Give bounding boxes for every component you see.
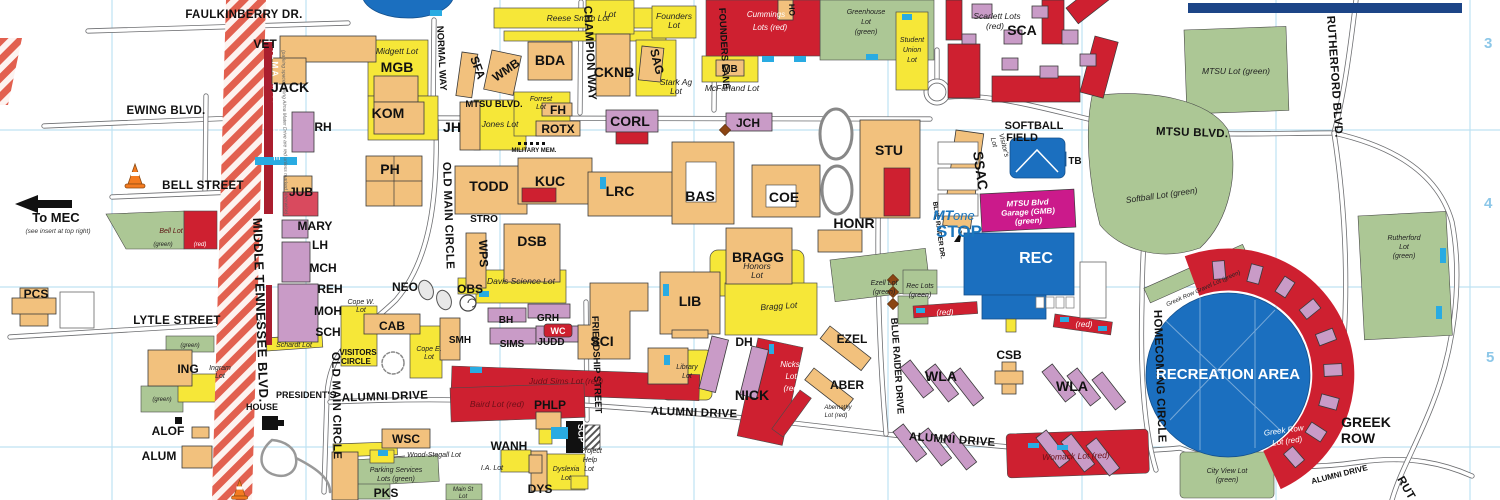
softball-field-shape[interactable]	[1010, 138, 1065, 178]
lot-label-rutherford-3: (green)	[1393, 253, 1416, 260]
lot-label-mtsu: MTSU Lot (green)	[1202, 66, 1270, 76]
label-wps: WPS	[476, 240, 491, 268]
street-greek-row-1: GREEK	[1341, 414, 1391, 430]
campus-map: 3 4 5	[0, 0, 1500, 500]
lot-label-parking-1: Parking Services	[370, 467, 423, 474]
lot-label-dyslexia-1: Dyslexia	[553, 466, 580, 473]
presidents-house-icon	[262, 416, 284, 430]
lot-label-cummings-1: Cummings	[747, 10, 785, 19]
building-ia[interactable]	[529, 455, 542, 473]
label-stu: STU	[875, 142, 903, 158]
building-alof[interactable]	[192, 427, 209, 438]
lot-label-bell-red: (red)	[194, 242, 207, 248]
lot-phlp[interactable]	[539, 429, 552, 444]
lot-label-schardt: Schardt Lot	[276, 342, 313, 349]
visitors-circle-2: CIRCLE	[341, 357, 371, 366]
label-fh: FH	[550, 103, 566, 117]
lot-label-scarlett-1: Scarlett Lots	[973, 11, 1021, 21]
lot-label-mcfarland: McFarland Lot	[705, 83, 760, 93]
label-obs: OBS	[457, 282, 483, 296]
grid-number-4: 4	[1484, 195, 1493, 212]
lot-label-wood: Wood-Stegall Lot	[407, 452, 462, 459]
label-vet: VET	[253, 37, 277, 51]
lot-label-reclots-2: (green)	[909, 292, 932, 299]
label-lib: LIB	[679, 293, 702, 309]
label-sca: SCA	[1007, 22, 1037, 38]
label-ezel: EZEL	[837, 332, 868, 346]
label-scp: SCP	[576, 424, 587, 443]
lot-label-project-3: Lot	[584, 466, 595, 473]
lot-label-parking-2: Lots (green)	[377, 476, 415, 483]
lot-label-student-3: Lot	[907, 57, 918, 64]
lot-label-stark-2: Lot	[670, 86, 682, 96]
construction-zone	[0, 0, 266, 500]
lot-project-help[interactable]	[571, 476, 588, 489]
ing-marker	[175, 417, 182, 424]
lot-label-main-2: Lot	[459, 494, 468, 500]
street-rutherford: RUTHERFORD BLVD.	[1324, 15, 1344, 138]
lot-rec-1[interactable]	[903, 270, 937, 294]
street-alumni-2: ALUMNI DRIVE	[651, 405, 738, 420]
street-mtsu-e: MTSU BLVD.	[1156, 126, 1229, 141]
building-corl-red[interactable]	[616, 132, 648, 144]
label-phlp: PHLP	[534, 398, 566, 412]
wood-stegall-leader	[394, 456, 405, 457]
lot-label-city-1: City View Lot	[1207, 468, 1249, 475]
recreation-area-label: RECREATION AREA	[1156, 366, 1300, 383]
lot-label-library-2: Lot	[682, 373, 693, 380]
street-greek-row-2: ROW	[1341, 430, 1376, 446]
street-mtsu-w: MTSU BLVD.	[465, 99, 522, 110]
lot-label-rutherford-2: Lot	[1399, 244, 1410, 251]
lot-label-main-1: Main St	[453, 487, 474, 493]
lot-label-greenhouse-2: Lot	[861, 19, 872, 26]
label-wanh: WANH	[491, 439, 528, 453]
label-mgb: MGB	[381, 59, 414, 75]
label-sims: SIMS	[500, 339, 525, 350]
lot-label-cummings-2: Lots (red)	[753, 23, 788, 32]
street-ewing: EWING BLVD.	[126, 105, 205, 117]
label-sch: SCH	[315, 325, 340, 339]
grid-number-5: 5	[1486, 349, 1494, 366]
label-coe: COE	[769, 189, 799, 205]
lot-label-greenhouse-1: Greenhouse	[847, 9, 886, 16]
lot-label-dyslexia-2: Lot	[561, 475, 572, 482]
mt-one-stop-stop: STOP	[936, 222, 982, 241]
lot-label-partial: Lot	[604, 9, 616, 19]
lot-label-nicks-3: (red)	[784, 384, 801, 393]
to-mec-note: (see insert at top right)	[25, 228, 90, 235]
svg-text:Lot: Lot	[989, 137, 998, 149]
label-moh: MOH	[314, 304, 342, 318]
lot-label-project-1: Project	[580, 448, 603, 455]
label-cknb: CKNB	[594, 64, 634, 80]
street-normal-way: NORMAL WAY	[434, 26, 448, 92]
lot-ia[interactable]	[501, 450, 531, 472]
lot-rutherford[interactable]	[1358, 211, 1452, 339]
label-honr: HONR	[833, 215, 874, 231]
label-neo: NEO	[392, 280, 418, 294]
label-rec: REC	[1019, 250, 1053, 267]
lot-softball[interactable]	[1088, 94, 1233, 254]
label-alof: ALOF	[152, 424, 185, 438]
lot-label-davis: Davis Science Lot	[487, 276, 556, 286]
softball-field-2: FIELD	[1006, 132, 1038, 144]
building-mgb[interactable]	[374, 76, 418, 102]
label-wla-east: WLA	[1056, 378, 1088, 394]
lot-label-midgett: Midgett Lot	[376, 46, 419, 56]
lot-label-greenhouse-3: (green)	[855, 29, 878, 36]
lot-label-ia: I.A. Lot	[481, 465, 504, 472]
visitors-circle-1: VISITORS	[339, 348, 377, 357]
label-kuc: KUC	[535, 173, 565, 189]
lot-label-founders-2: Lot	[668, 20, 680, 30]
lot-label-reclots-1: Rec Lots	[906, 283, 934, 290]
label-smh: SMH	[449, 335, 471, 346]
building-reh-moh-sch[interactable]	[278, 284, 318, 342]
inset-box-border	[1188, 3, 1462, 13]
label-dh: DH	[735, 335, 752, 349]
rec-courts	[1036, 297, 1074, 308]
lot-city-view[interactable]	[1180, 452, 1274, 498]
building-lib-base[interactable]	[672, 330, 708, 338]
mt-one-stop-one: one	[953, 208, 975, 223]
building-phlp[interactable]	[536, 412, 561, 429]
lot-label-wla-red-2: (red)	[1076, 320, 1093, 329]
label-jh: JH	[443, 119, 461, 135]
label-todd: TODD	[469, 178, 508, 194]
label-alum: ALUM	[142, 449, 177, 463]
lot-label-project-2: Help	[583, 457, 598, 464]
practice-oval-1	[820, 109, 852, 159]
label-cab: CAB	[379, 319, 405, 333]
lot-label-ingram-1: Ingram	[209, 365, 231, 372]
label-jch: JCH	[736, 116, 760, 130]
label-jack: JACK	[271, 79, 309, 95]
mt-one-stop-mt: MT	[933, 207, 955, 223]
lot-label-jones: Jones Lot	[481, 119, 519, 129]
lot-label-ezell-1: Ezell Lot	[871, 280, 899, 287]
lot-label-student-1: Student	[900, 37, 925, 44]
label-kom: KOM	[372, 105, 405, 121]
label-mary: MARY	[298, 219, 333, 233]
building-rec-yellow[interactable]	[1006, 319, 1016, 332]
street-lytle: LYTLE STREET	[133, 315, 221, 327]
building-lh-mch[interactable]	[282, 242, 310, 282]
label-lrc: LRC	[606, 183, 635, 199]
lot-label-cope-e-1: Cope E.	[416, 346, 441, 353]
lot-label-ing-green-2: (green)	[152, 397, 171, 403]
label-ing: ING	[177, 362, 198, 376]
street-faulkinberry: FAULKINBERRY DR.	[185, 9, 302, 21]
label-pcs: PCS	[24, 287, 49, 301]
lot-label-abernathy-2: Lot (red)	[825, 413, 848, 419]
label-wla-west: WLA	[925, 368, 957, 384]
building-rh[interactable]	[292, 112, 314, 152]
military-mem-label: MILITARY MEM.	[512, 148, 557, 154]
building-kuc-red[interactable]	[522, 188, 556, 202]
lot-label-ingram-2: Lot	[215, 373, 226, 380]
lot-label-student-2: Union	[903, 47, 921, 54]
label-tb: TB	[1068, 156, 1081, 167]
lot-label-cope-e-2: Lot	[424, 354, 435, 361]
building-honr[interactable]	[818, 230, 862, 252]
lot-label-reese: Reese Smith Lot	[547, 13, 610, 23]
lot-label-cope-w-1: Cope W.	[348, 299, 375, 306]
label-corl: CORL	[610, 113, 650, 129]
building-unlabeled-2[interactable]	[1080, 262, 1106, 318]
building-stu-red[interactable]	[884, 168, 910, 216]
lot-label-rutherford-1: Rutherford	[1387, 235, 1421, 242]
lot-label-baird: Baird Lot (red)	[470, 399, 524, 409]
label-jub: JUB	[289, 185, 313, 199]
lot-label-abernathy-1: Abernathy	[823, 405, 852, 411]
building-csb-h[interactable]	[995, 371, 1023, 384]
presidents-house-1: PRESIDENT'S	[276, 390, 336, 400]
lot-label-judd-sims: Judd Sims Lot (red)	[528, 376, 603, 386]
building-unlabeled-1[interactable]	[60, 292, 94, 328]
street-friendship: FRIENDSHIP STREET	[589, 316, 603, 414]
building-alum[interactable]	[182, 446, 212, 468]
presidents-house-2: HOUSE	[246, 402, 278, 412]
label-wsc: WSC	[392, 432, 420, 446]
label-rotx: ROTX	[541, 122, 574, 136]
lot-label-scarlett-2: (red)	[986, 21, 1004, 31]
grid-number-3: 3	[1484, 35, 1492, 52]
label-grh: GRH	[537, 313, 559, 324]
label-csb: CSB	[996, 348, 1022, 362]
lot-label-bell-green: (green)	[153, 242, 172, 248]
label-wc: WC	[551, 326, 566, 336]
street-alma-mater: ALMA MATER DRIVE	[270, 46, 282, 163]
label-bda: BDA	[535, 52, 565, 68]
practice-oval-2	[822, 166, 852, 214]
lot-label-wla-red-1: (red)	[937, 308, 954, 317]
svg-text:(green): (green)	[1015, 216, 1043, 226]
softball-field-1: SOFTBALL	[1005, 120, 1064, 132]
lot-label-ezell-2: (green)	[873, 289, 896, 296]
label-dsb: DSB	[517, 233, 547, 249]
lot-label-city-2: (green)	[1216, 477, 1239, 484]
lot-label-nicks-2: Lot	[785, 372, 797, 381]
label-stro: STRO	[470, 214, 498, 225]
label-sci: SCI	[590, 333, 613, 349]
label-mch: MCH	[309, 261, 336, 275]
street-blue-raider: BLUE RAIDER DRIVE	[888, 317, 906, 414]
to-mec-label: To MEC	[32, 210, 80, 225]
lot-label-cope-w-2: Lot	[356, 307, 367, 314]
lot-label-ing-green-1: (green)	[180, 343, 199, 349]
label-lh: LH	[312, 238, 328, 252]
label-rh: RH	[314, 120, 331, 134]
label-mb: MB	[722, 64, 738, 75]
visitor-lot-row-2	[938, 168, 978, 190]
label-ph: PH	[380, 161, 399, 177]
lot-label-forrest-1: Forrest	[530, 96, 553, 103]
street-bell: BELL STREET	[162, 180, 244, 192]
lot-label-bell: Bell Lot	[159, 228, 183, 235]
label-judd: JUDD	[537, 337, 564, 348]
street-old-main-1: OLD MAIN CIRCLE	[440, 162, 456, 270]
label-bh: BH	[499, 315, 513, 326]
label-dys: DYS	[528, 482, 553, 496]
label-ho: HO	[787, 4, 796, 16]
lot-label-forrest-2: Lot	[536, 104, 547, 111]
street-old-main-2: OLD MAIN CIRCLE	[329, 352, 343, 460]
label-reh: REH	[317, 282, 342, 296]
label-aber: ABER	[830, 378, 864, 392]
label-bas: BAS	[685, 188, 715, 204]
lot-label-nicks-1: Nicks	[780, 360, 800, 369]
lot-label-honors-2: Lot	[751, 270, 763, 280]
label-nick: NICK	[735, 387, 769, 403]
label-pks: PKS	[374, 486, 399, 500]
lot-label-library-1: Library	[676, 364, 698, 371]
